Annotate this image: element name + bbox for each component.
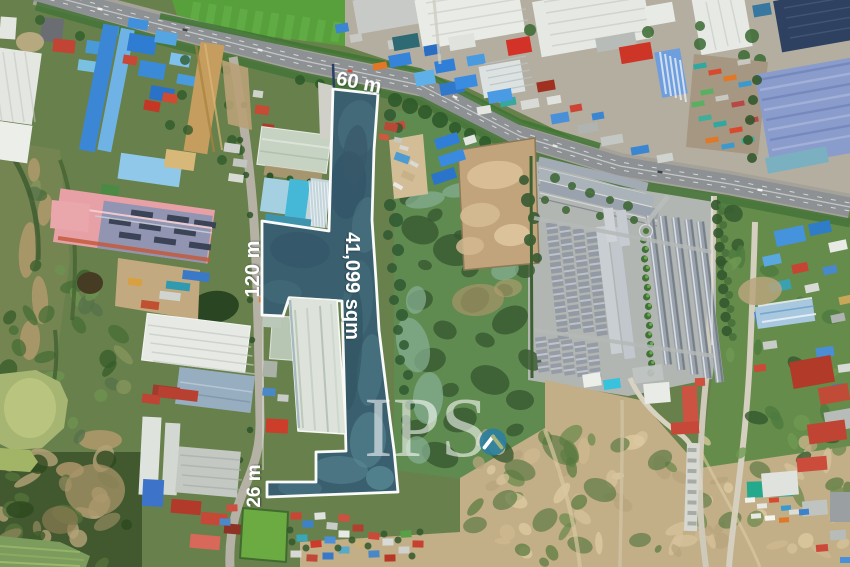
svg-text:IPS: IPS bbox=[364, 379, 488, 475]
svg-text:120 m: 120 m bbox=[242, 241, 264, 298]
svg-text:41,099 sqm: 41,099 sqm bbox=[341, 232, 363, 340]
svg-text:26 m: 26 m bbox=[244, 464, 265, 507]
